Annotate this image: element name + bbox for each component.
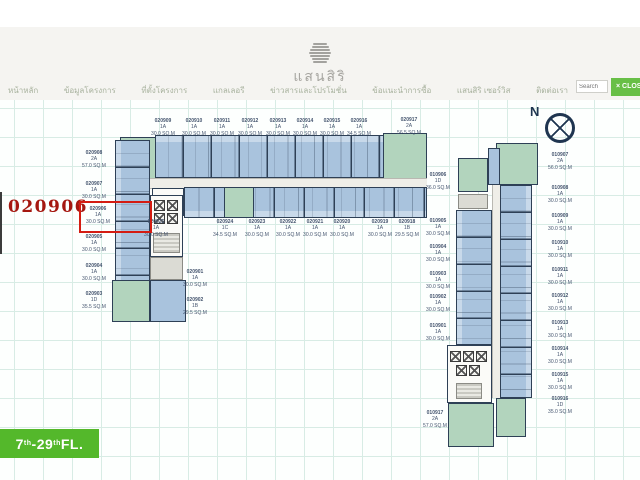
floor-range-badge: 7th-29th FL. [0, 429, 99, 458]
unit-label-020923[interactable]: 0209231A30.0 SQ.M [242, 219, 272, 238]
unit-label-020905[interactable]: 0209051A30.0 SQ.M [78, 234, 110, 253]
close-button[interactable]: × CLOSE [611, 78, 640, 96]
unit-label-020922[interactable]: 0209221A30.0 SQ.M [273, 219, 303, 238]
unit-block-teal-bottom-arm [112, 280, 150, 322]
unit-label-020913[interactable]: 0209131A30.0 SQ.M [263, 118, 293, 137]
unit-label-010915[interactable]: 0109151A30.0 SQ.M [544, 372, 576, 391]
unit-label-020903[interactable]: 0209031D35.5 SQ.M [78, 291, 110, 310]
nav-item-4[interactable]: ข่าวสารและโปรโมชั่น [270, 84, 347, 97]
nav-item-2[interactable]: ที่ตั้งโครงการ [141, 84, 187, 97]
unit-block-teal-bottom-row [224, 187, 254, 218]
unit-label-010904[interactable]: 0109041A30.0 SQ.M [423, 244, 453, 263]
compass-icon [545, 113, 575, 143]
unit-label-010905[interactable]: 0109051A30.0 SQ.M [423, 218, 453, 237]
unit-label-010914[interactable]: 0109141A30.0 SQ.M [544, 346, 576, 365]
page: แสนสิริ หน้าหลักข้อมูลโครงการที่ตั้งโครง… [0, 0, 640, 480]
unit-label-020908[interactable]: 0209082A57.0 SQ.M [78, 150, 110, 169]
sansiri-logo-icon [309, 43, 331, 63]
floor-from-ordinal: th [24, 440, 32, 447]
highlighted-unit-number: 020906 [8, 197, 88, 217]
unit-label-020917[interactable]: 0209172A56.5 SQ.M [391, 117, 427, 136]
stairs-wing-core [456, 383, 482, 399]
unit-label-010910[interactable]: 0109101A30.0 SQ.M [544, 240, 576, 259]
nav-item-7[interactable]: ติดต่อเรา [536, 84, 568, 97]
unit-column-wing-right [500, 185, 532, 398]
lift-icon [456, 365, 467, 376]
unit-block-green-wing-bottom [448, 403, 494, 447]
edge-artifact [0, 192, 2, 254]
floor-to: -29 [32, 436, 54, 452]
unit-label-010917[interactable]: 0109172A57.0 SQ.M [418, 410, 452, 429]
search-input[interactable] [576, 80, 608, 93]
unit-label-010916[interactable]: 0109161D35.0 SQ.M [544, 396, 576, 415]
floor-suffix: FL. [61, 436, 84, 452]
unit-label-010908[interactable]: 0109081A30.0 SQ.M [544, 185, 576, 204]
unit-label-020910[interactable]: 0209101A30.0 SQ.M [179, 118, 209, 137]
unit-label-020914[interactable]: 0209141A30.0 SQ.M [290, 118, 320, 137]
unit-block-teal-wing-top [458, 158, 488, 192]
lift-icon [450, 351, 461, 362]
unit-label-020924[interactable]: 0209241C34.5 SQ.M [210, 219, 240, 238]
main-nav: หน้าหลักข้อมูลโครงการที่ตั้งโครงการแกลเล… [8, 82, 568, 98]
lift-icon [476, 351, 487, 362]
unit-label-010901[interactable]: 0109011A30.0 SQ.M [423, 323, 453, 342]
unit-label-020901[interactable]: 0209011A30.0 SQ.M [180, 269, 210, 288]
unit-label-020916[interactable]: 0209161A34.5 SQ.M [344, 118, 374, 137]
floorplan-canvas: 0209091A30.0 SQ.M0209101A30.0 SQ.M020911… [0, 100, 640, 480]
unit-label-020911[interactable]: 0209111A30.0 SQ.M [207, 118, 237, 137]
unit-label-020915[interactable]: 0209151A30.0 SQ.M [317, 118, 347, 137]
unit-label-010906[interactable]: 0109061D36.0 SQ.M [423, 172, 453, 191]
service-block-wing [458, 194, 488, 209]
lift-icon [154, 200, 165, 211]
unit-label-020918[interactable]: 0209181B29.5 SQ.M [392, 219, 422, 238]
unit-block-teal-wing-bottom [496, 398, 526, 437]
brand-logo[interactable]: แสนสิริ [0, 32, 640, 88]
unit-label-020921[interactable]: 0209211A30.0 SQ.M [300, 219, 330, 238]
lift-icon [167, 200, 178, 211]
unit-column-wing-left [456, 210, 492, 345]
nav-item-6[interactable]: แสนสิริ เซอร์วิส [457, 84, 511, 97]
nav-item-5[interactable]: ข้อแนะนำการซื้อ [372, 84, 431, 97]
site-header: แสนสิริ หน้าหลักข้อมูลโครงการที่ตั้งโครง… [0, 27, 640, 101]
unit-block-green-top-right [383, 133, 427, 181]
nav-item-1[interactable]: ข้อมูลโครงการ [64, 84, 116, 97]
unit-label-020902[interactable]: 0209021B29.5 SQ.M [180, 297, 210, 316]
top-margin [0, 0, 640, 27]
floor-to-ordinal: th [53, 440, 61, 447]
unit-strip-top [488, 148, 500, 185]
unit-label-020909[interactable]: 0209091A30.0 SQ.M [148, 118, 178, 137]
unit-label-010907[interactable]: 0109072A56.0 SQ.M [544, 152, 576, 171]
unit-row-top [155, 135, 385, 178]
compass-north-label: N [530, 104, 539, 119]
unit-label-010911[interactable]: 0109111A30.0 SQ.M [544, 267, 576, 286]
lift-icon [463, 351, 474, 362]
service-shaft [150, 257, 183, 280]
unit-label-010902[interactable]: 0109021A30.0 SQ.M [423, 294, 453, 313]
highlight-box[interactable] [79, 201, 152, 233]
unit-label-020904[interactable]: 0209041A30.0 SQ.M [78, 263, 110, 282]
unit-label-010903[interactable]: 0109031A30.0 SQ.M [423, 271, 453, 290]
nav-item-0[interactable]: หน้าหลัก [8, 84, 38, 97]
unit-label-020919[interactable]: 0209191A30.0 SQ.M [365, 219, 395, 238]
floor-from: 7 [16, 436, 24, 452]
unit-row-bottom [184, 187, 427, 218]
unit-label-010912[interactable]: 0109121A30.0 SQ.M [544, 293, 576, 312]
unit-label-010913[interactable]: 0109131A30.0 SQ.M [544, 320, 576, 339]
unit-label-020920[interactable]: 0209201A30.0 SQ.M [327, 219, 357, 238]
nav-item-3[interactable]: แกลเลอรี [213, 84, 245, 97]
unit-label-010909[interactable]: 0109091A30.0 SQ.M [544, 213, 576, 232]
unit-label-020912[interactable]: 0209121A30.0 SQ.M [235, 118, 265, 137]
unit-block-green-wing-top [496, 143, 538, 185]
lift-icon [469, 365, 480, 376]
